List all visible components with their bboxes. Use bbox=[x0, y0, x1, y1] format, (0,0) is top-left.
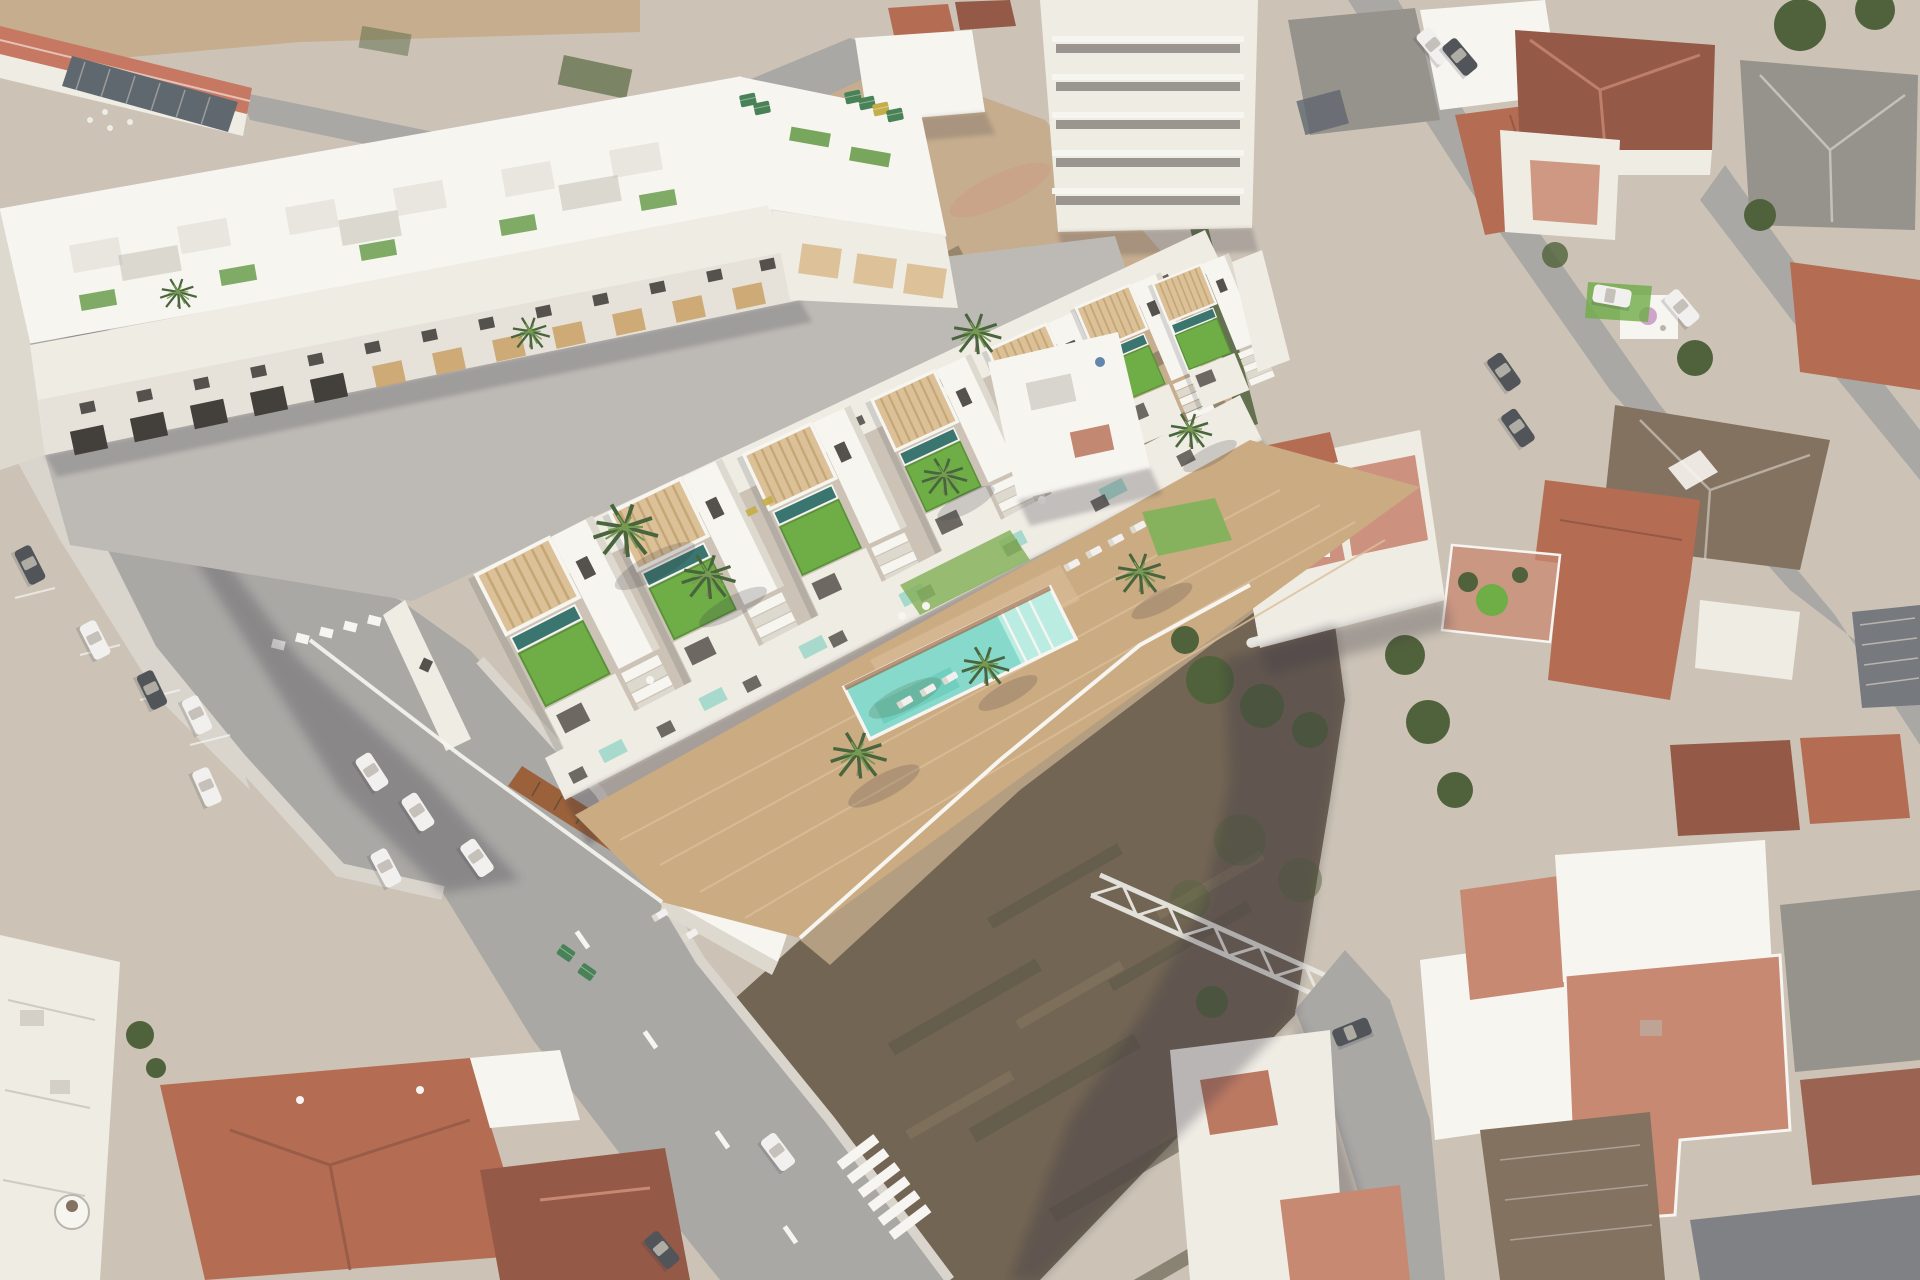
scene-canvas bbox=[0, 0, 1920, 1280]
aerial-photo: Aerial view of new-build townhouse devel… bbox=[0, 0, 1920, 1280]
atmospheric-haze bbox=[0, 0, 1920, 1280]
